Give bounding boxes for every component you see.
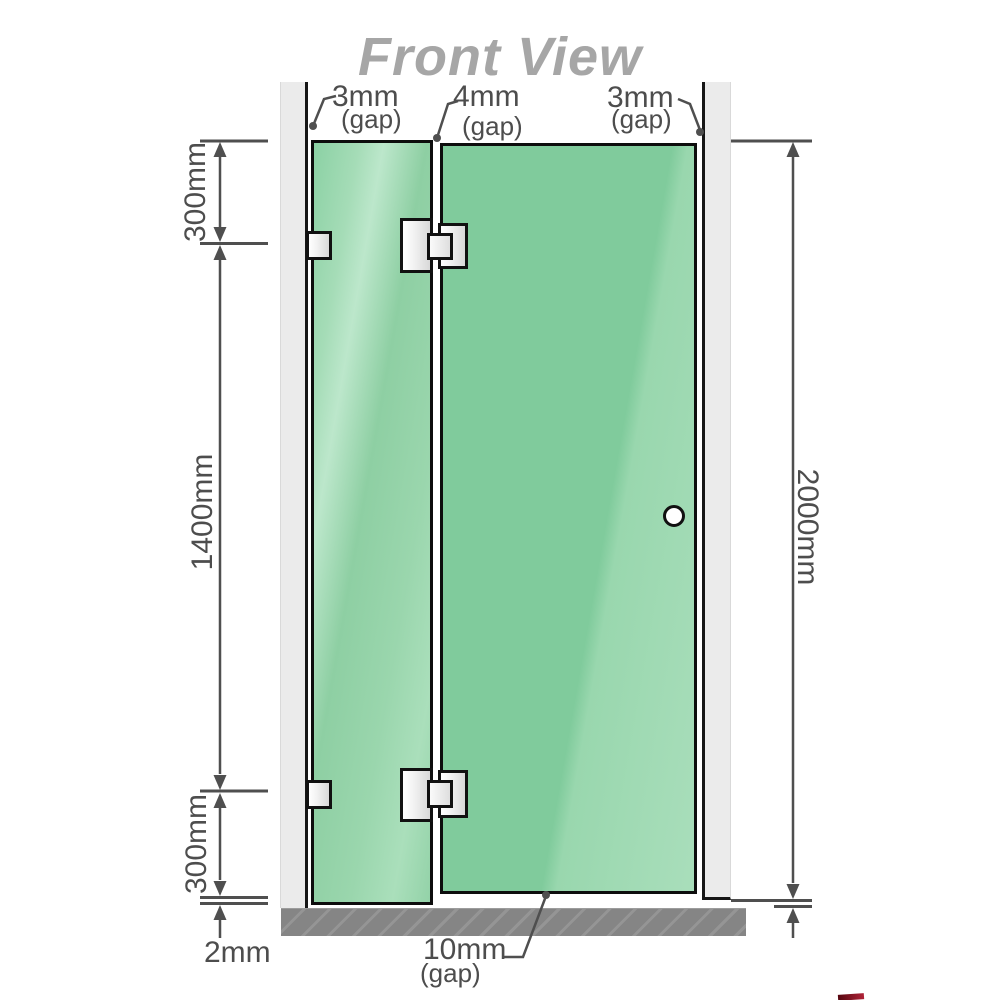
wall-bracket-top [306, 231, 332, 260]
dim-left-bottom: 300mm [182, 794, 212, 894]
gap-top-right-note: (gap) [611, 106, 672, 132]
gap-top-middle-value: 4mm [453, 82, 520, 112]
dim-bottom-left: 2mm [204, 938, 271, 968]
dim-right-height: 2000mm [792, 469, 822, 586]
gap-bottom-note: (gap) [420, 960, 481, 986]
diagram-title: Front View [0, 26, 1000, 88]
wall-bracket-bottom [306, 780, 332, 809]
dim-left-top: 300mm [181, 142, 211, 242]
left-wall-profile [280, 82, 308, 908]
watermark-fragment [838, 993, 864, 1000]
hinge-top-knuckle [427, 233, 453, 260]
hinge-bottom-knuckle [427, 780, 453, 808]
door-glass-panel [440, 143, 697, 894]
right-wall-profile [702, 82, 731, 900]
gap-top-middle-note: (gap) [462, 113, 523, 139]
door-knob [663, 505, 685, 527]
diagram-canvas: Front View [0, 0, 1000, 1000]
floor-base [281, 908, 746, 936]
gap-top-left-note: (gap) [341, 106, 402, 132]
dim-left-middle: 1400mm [188, 454, 218, 571]
